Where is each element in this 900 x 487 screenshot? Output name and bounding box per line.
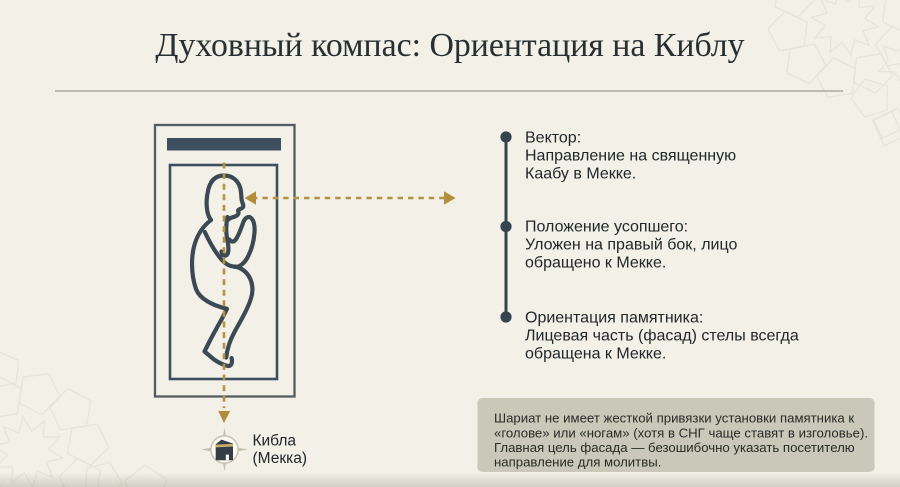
svg-text:«голове» или «ногам» (хотя в С: «голове» или «ногам» (хотя в СНГ чаще ст… [494, 425, 868, 440]
svg-text:Духовный компас: Ориентация на: Духовный компас: Ориентация на Киблу [155, 27, 744, 64]
svg-text:направление для молитвы.: направление для молитвы. [494, 455, 661, 470]
svg-text:Направление на священную: Направление на священную [525, 148, 736, 165]
svg-text:Главная цель фасада — безошибо: Главная цель фасада — безошибочно указат… [494, 440, 855, 455]
svg-text:Ориентация памятника:: Ориентация памятника: [525, 310, 703, 327]
svg-text:Кибла: Кибла [253, 433, 297, 450]
svg-text:Уложен на правый бок, лицо: Уложен на правый бок, лицо [525, 237, 737, 254]
svg-text:обращено к Мекке.: обращено к Мекке. [525, 255, 666, 272]
svg-text:Вектор:: Вектор: [525, 130, 581, 147]
svg-text:обращена к Мекке.: обращена к Мекке. [525, 346, 666, 363]
svg-text:Шариат не имеет жесткой привяз: Шариат не имеет жесткой привязки установ… [494, 411, 854, 426]
svg-text:Лицевая часть (фасад) стелы вс: Лицевая часть (фасад) стелы всегда [525, 328, 799, 345]
svg-text:Каабу в Мекке.: Каабу в Мекке. [525, 166, 636, 183]
svg-text:(Мекка): (Мекка) [253, 450, 308, 467]
svg-text:Положение усопшего:: Положение усопшего: [525, 219, 688, 236]
